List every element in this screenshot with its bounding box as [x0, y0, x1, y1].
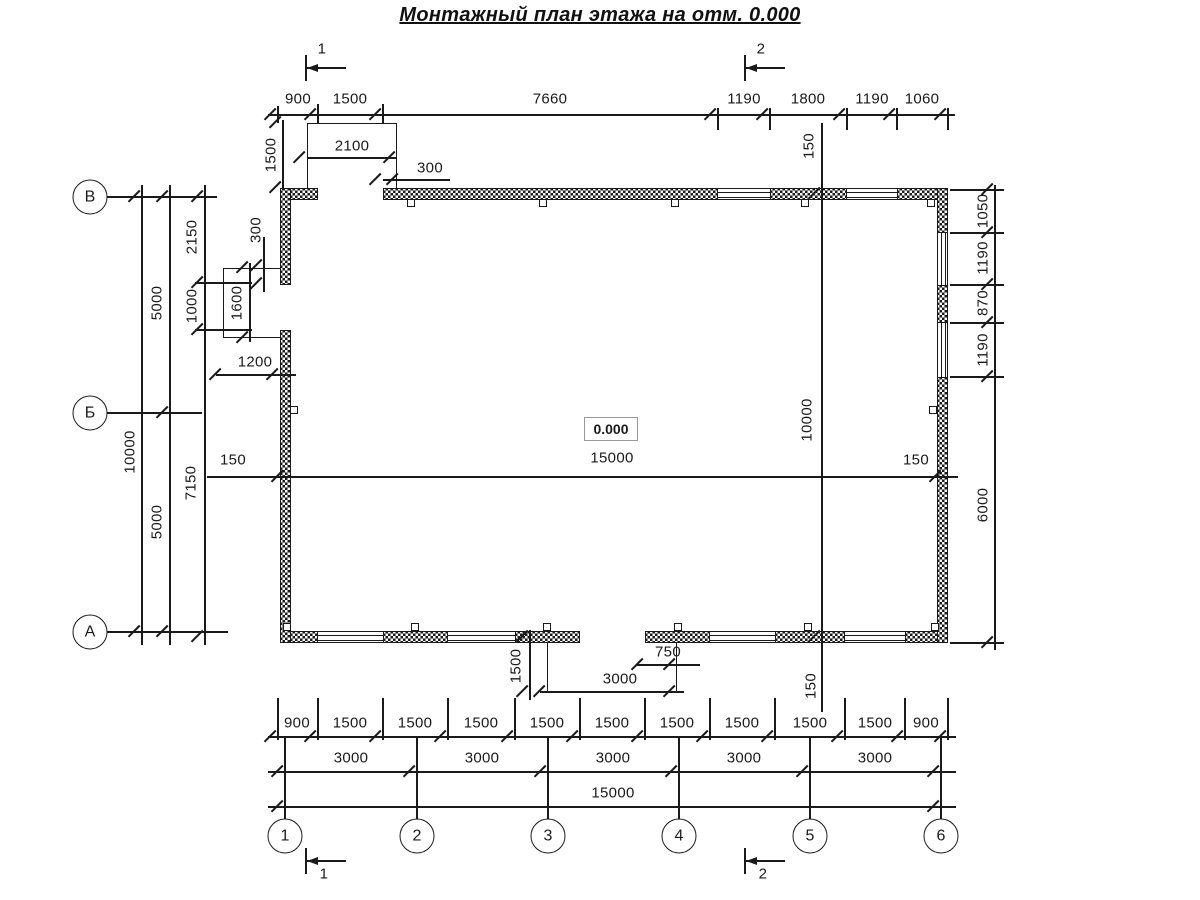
dimension-label: 1500 — [530, 715, 565, 732]
dimension-label: 15000 — [590, 450, 633, 467]
grid-line — [844, 698, 845, 740]
window-opening — [718, 188, 770, 200]
grid-line — [809, 737, 810, 819]
window-opening — [845, 631, 905, 643]
grid-line — [169, 185, 170, 645]
dimension-label: 750 — [655, 644, 681, 661]
porch-outline — [307, 123, 397, 188]
dimension-label: 3000 — [858, 750, 893, 767]
mounting-plate-mark — [411, 623, 419, 631]
dimension-label: 1190 — [727, 91, 760, 108]
grid-line — [514, 698, 515, 740]
dimension-label: 3000 — [334, 750, 369, 767]
grid-line — [382, 698, 383, 740]
dimension-label: 1500 — [508, 649, 525, 684]
window-opening — [847, 188, 897, 200]
mounting-plate-mark — [927, 199, 935, 207]
dimension-label: 1800 — [791, 91, 826, 108]
drawing-title: Монтажный план этажа на отм. 0.000 — [0, 4, 1200, 27]
grid-line — [774, 698, 775, 740]
dimension-label: 900 — [913, 715, 939, 732]
section-arrow-icon — [307, 64, 318, 72]
mounting-plate-mark — [929, 406, 937, 414]
dimension-label: 1500 — [660, 715, 695, 732]
section-label-bottom-1: 1 — [320, 866, 329, 883]
section-arrow-icon — [307, 857, 318, 865]
dimension-label: 300 — [248, 217, 265, 243]
dimension-label: 3000 — [596, 750, 631, 767]
axis-circle-2: 2 — [400, 819, 435, 854]
grid-line — [950, 284, 1004, 285]
tick-mark — [293, 151, 305, 163]
window-opening — [448, 631, 515, 643]
grid-line — [709, 698, 710, 740]
wall-segment — [280, 330, 291, 643]
wall-segment — [645, 631, 710, 643]
grid-line — [317, 698, 318, 740]
mounting-plate-mark — [804, 623, 812, 631]
grid-line — [717, 108, 718, 130]
dimension-label: 2100 — [335, 138, 370, 155]
grid-line — [416, 737, 417, 819]
axis-circle-6: 6 — [924, 819, 959, 854]
grid-line — [383, 179, 450, 180]
dimension-label: 150 — [801, 133, 818, 159]
grid-line — [994, 185, 995, 650]
wall-segment — [937, 188, 948, 233]
dimension-label: 7150 — [183, 466, 200, 501]
dimension-label: 3000 — [465, 750, 500, 767]
floor-plan-drawing: Монтажный план этажа на отм. 0.000 0.000… — [0, 0, 1200, 900]
dimension-label: 1500 — [263, 138, 280, 173]
dimension-label: 150 — [220, 452, 246, 469]
dimension-label: 1500 — [793, 715, 828, 732]
dimension-label: 150 — [803, 673, 820, 699]
mounting-plate-mark — [290, 406, 298, 414]
axis-circle-1: 1 — [268, 819, 303, 854]
grid-line — [950, 232, 1004, 233]
grid-line — [950, 642, 1004, 643]
tick-mark — [516, 685, 528, 697]
dimension-label: 150 — [903, 452, 929, 469]
grid-line — [529, 630, 530, 700]
section-label-bottom-2: 2 — [759, 866, 768, 883]
dimension-label: 10000 — [799, 398, 816, 441]
wall-segment — [383, 188, 718, 200]
grid-line — [268, 806, 956, 807]
grid-line — [950, 189, 1004, 190]
tick-mark — [269, 116, 281, 128]
dimension-label: 3000 — [727, 750, 762, 767]
window-opening — [710, 631, 775, 643]
wall-segment — [383, 631, 448, 643]
grid-line — [904, 698, 905, 740]
grid-line — [277, 698, 278, 740]
section-arrow-icon — [746, 64, 757, 72]
grid-line — [644, 698, 645, 740]
dimension-label: 1500 — [725, 715, 760, 732]
axis-circle-Б: Б — [73, 396, 108, 431]
grid-line — [540, 691, 684, 692]
dimension-label: 1600 — [229, 286, 246, 321]
mounting-plate-mark — [283, 623, 291, 631]
grid-line — [107, 631, 228, 632]
dimension-label: 1060 — [905, 91, 940, 108]
axis-circle-5: 5 — [793, 819, 828, 854]
dimension-label: 300 — [417, 160, 443, 177]
section-label-top-2: 2 — [757, 41, 766, 58]
grid-line — [940, 737, 941, 819]
grid-line — [896, 108, 897, 130]
mounting-plate-mark — [543, 623, 551, 631]
grid-line — [307, 157, 397, 158]
axis-circle-3: 3 — [531, 819, 566, 854]
dimension-label: 5000 — [149, 286, 166, 321]
dimension-label: 1190 — [975, 333, 992, 366]
dimension-label: 900 — [285, 91, 311, 108]
grid-line — [107, 412, 202, 413]
dimension-label: 1200 — [238, 354, 273, 371]
dimension-label: 10000 — [122, 430, 139, 473]
dimension-label: 870 — [975, 290, 992, 316]
grid-line — [769, 108, 770, 130]
dimension-label: 1000 — [184, 289, 201, 324]
dimension-label: 15000 — [591, 785, 634, 802]
grid-line — [678, 737, 679, 819]
dimension-label: 6000 — [975, 488, 992, 523]
elevation-value: 0.000 — [593, 421, 628, 437]
window-opening — [318, 631, 383, 643]
grid-line — [947, 108, 948, 130]
grid-line — [947, 698, 948, 740]
grid-line — [204, 185, 205, 645]
grid-line — [382, 104, 383, 123]
axis-circle-А: А — [73, 615, 108, 650]
mounting-plate-mark — [539, 199, 547, 207]
dimension-label: 7660 — [533, 91, 568, 108]
grid-line — [207, 476, 958, 477]
grid-line — [282, 120, 283, 190]
mounting-plate-mark — [671, 199, 679, 207]
dimension-label: 1500 — [595, 715, 630, 732]
dimension-label: 900 — [284, 715, 310, 732]
wall-segment — [937, 285, 948, 323]
dimension-label: 1500 — [858, 715, 893, 732]
grid-line — [284, 737, 285, 819]
grid-line — [579, 698, 580, 740]
wall-segment — [937, 377, 948, 643]
dimension-label: 1500 — [464, 715, 499, 732]
grid-line — [846, 108, 847, 130]
elevation-marker: 0.000 — [584, 417, 638, 441]
dimension-label: 5000 — [149, 505, 166, 540]
grid-line — [249, 263, 250, 342]
section-label-top-1: 1 — [318, 41, 327, 58]
dimension-label: 1050 — [975, 194, 992, 229]
grid-line — [268, 771, 956, 772]
grid-line — [547, 737, 548, 819]
mounting-plate-mark — [407, 199, 415, 207]
dimension-label: 1500 — [398, 715, 433, 732]
dimension-label: 3000 — [603, 671, 638, 688]
axis-circle-4: 4 — [662, 819, 697, 854]
section-arrow-icon — [746, 857, 757, 865]
mounting-plate-mark — [801, 199, 809, 207]
grid-line — [950, 376, 1004, 377]
dimension-label: 2150 — [184, 220, 201, 255]
axis-circle-В: В — [73, 180, 108, 215]
grid-line — [216, 374, 296, 375]
grid-line — [950, 322, 1004, 323]
window-opening — [937, 233, 948, 285]
window-opening — [937, 323, 948, 377]
grid-line — [141, 185, 142, 645]
mounting-plate-mark — [931, 623, 939, 631]
dimension-label: 1500 — [333, 715, 368, 732]
grid-line — [317, 104, 318, 123]
grid-line — [447, 698, 448, 740]
dimension-label: 1500 — [333, 91, 368, 108]
mounting-plate-mark — [674, 623, 682, 631]
dimension-label: 1190 — [975, 241, 992, 274]
dimension-label: 1190 — [855, 91, 888, 108]
grid-line — [821, 123, 822, 712]
grid-line — [263, 237, 264, 292]
wall-segment — [280, 188, 291, 285]
